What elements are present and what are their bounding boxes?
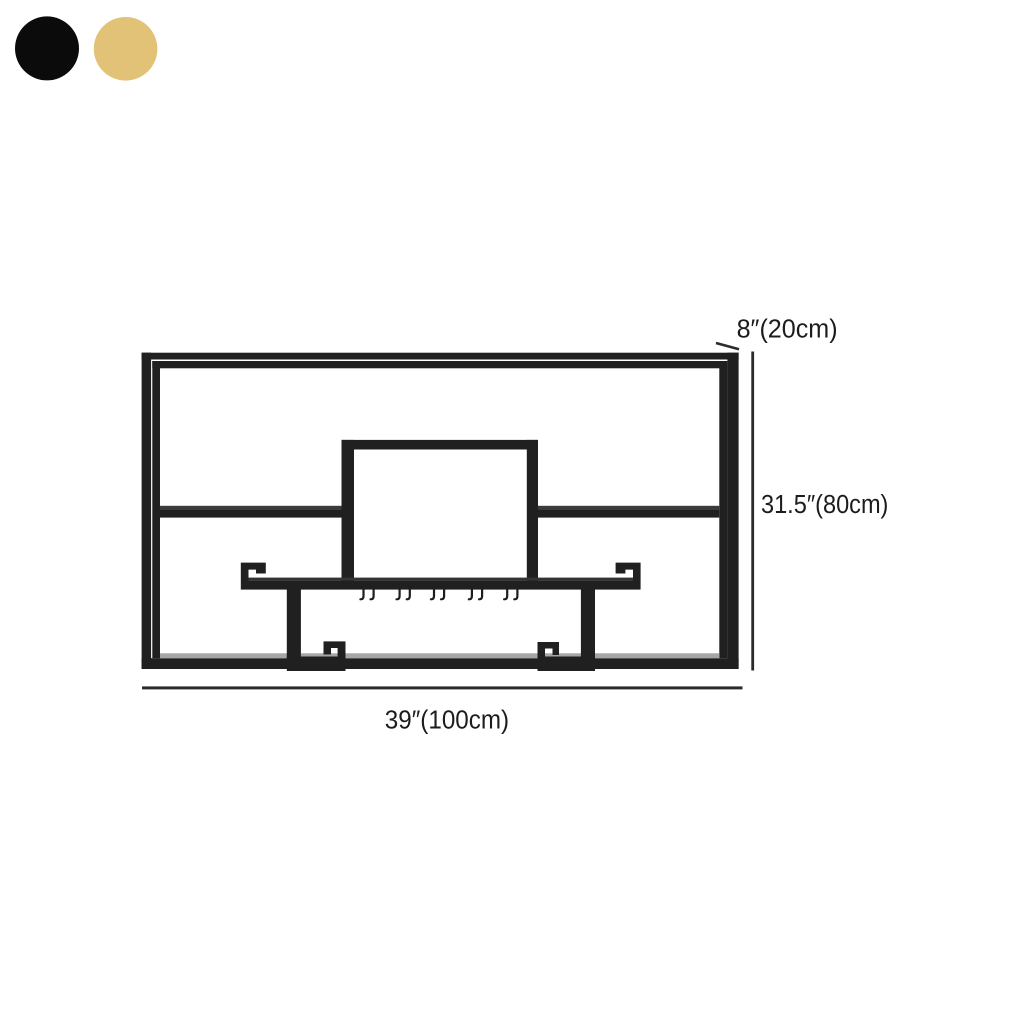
svg-text:31.5″(80cm): 31.5″(80cm)	[761, 491, 888, 519]
svg-text:39″(100cm): 39″(100cm)	[385, 707, 509, 735]
svg-text:8″(20cm): 8″(20cm)	[737, 315, 838, 343]
